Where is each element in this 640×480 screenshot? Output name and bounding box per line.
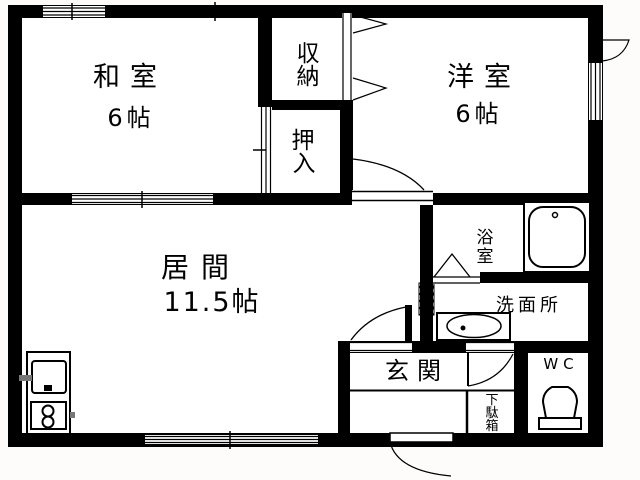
- getabako-char-3: 箱: [485, 418, 498, 434]
- genkan-label: 玄関: [385, 357, 449, 385]
- yokushitsu-char-2: 室: [477, 247, 494, 267]
- washbasin-icon: [437, 313, 510, 340]
- wc-label: WC: [543, 355, 578, 373]
- toilet-icon: [539, 387, 581, 429]
- oshiire-char-2: 入: [293, 151, 316, 177]
- wall-washitsu-right: [258, 17, 272, 107]
- floor-plan: 和室 6帖 洋室 6帖 居間 11.5帖 収 納 押 入 浴 室 洗面所 WC …: [0, 0, 640, 480]
- shuunou-char-2: 納: [297, 64, 320, 90]
- window-right-icon: [589, 63, 602, 120]
- bathtub-icon: [524, 202, 590, 272]
- yokushitsu-char-1: 浴: [477, 228, 494, 248]
- wall-wc-left: [514, 353, 528, 447]
- wall-hatched-section: [419, 283, 434, 315]
- youshitsu-size: 6帖: [455, 100, 502, 128]
- washitsu-size: 6帖: [107, 104, 154, 132]
- washitsu-label: 和室: [93, 62, 167, 93]
- wall-oshiire-right: [340, 100, 353, 205]
- window-swing-icon: [602, 40, 629, 61]
- senmenjo-label: 洗面所: [496, 295, 562, 316]
- ima-size: 11.5帖: [163, 287, 260, 318]
- ima-label: 居間: [161, 251, 241, 284]
- kitchen-unit-icon: [19, 352, 75, 434]
- wall-ima-genkan: [338, 341, 350, 433]
- wall-ima-right: [420, 200, 433, 350]
- door-entrance-icon: [390, 433, 453, 476]
- wall-bath-washroom: [480, 272, 602, 283]
- youshitsu-label: 洋室: [447, 62, 521, 93]
